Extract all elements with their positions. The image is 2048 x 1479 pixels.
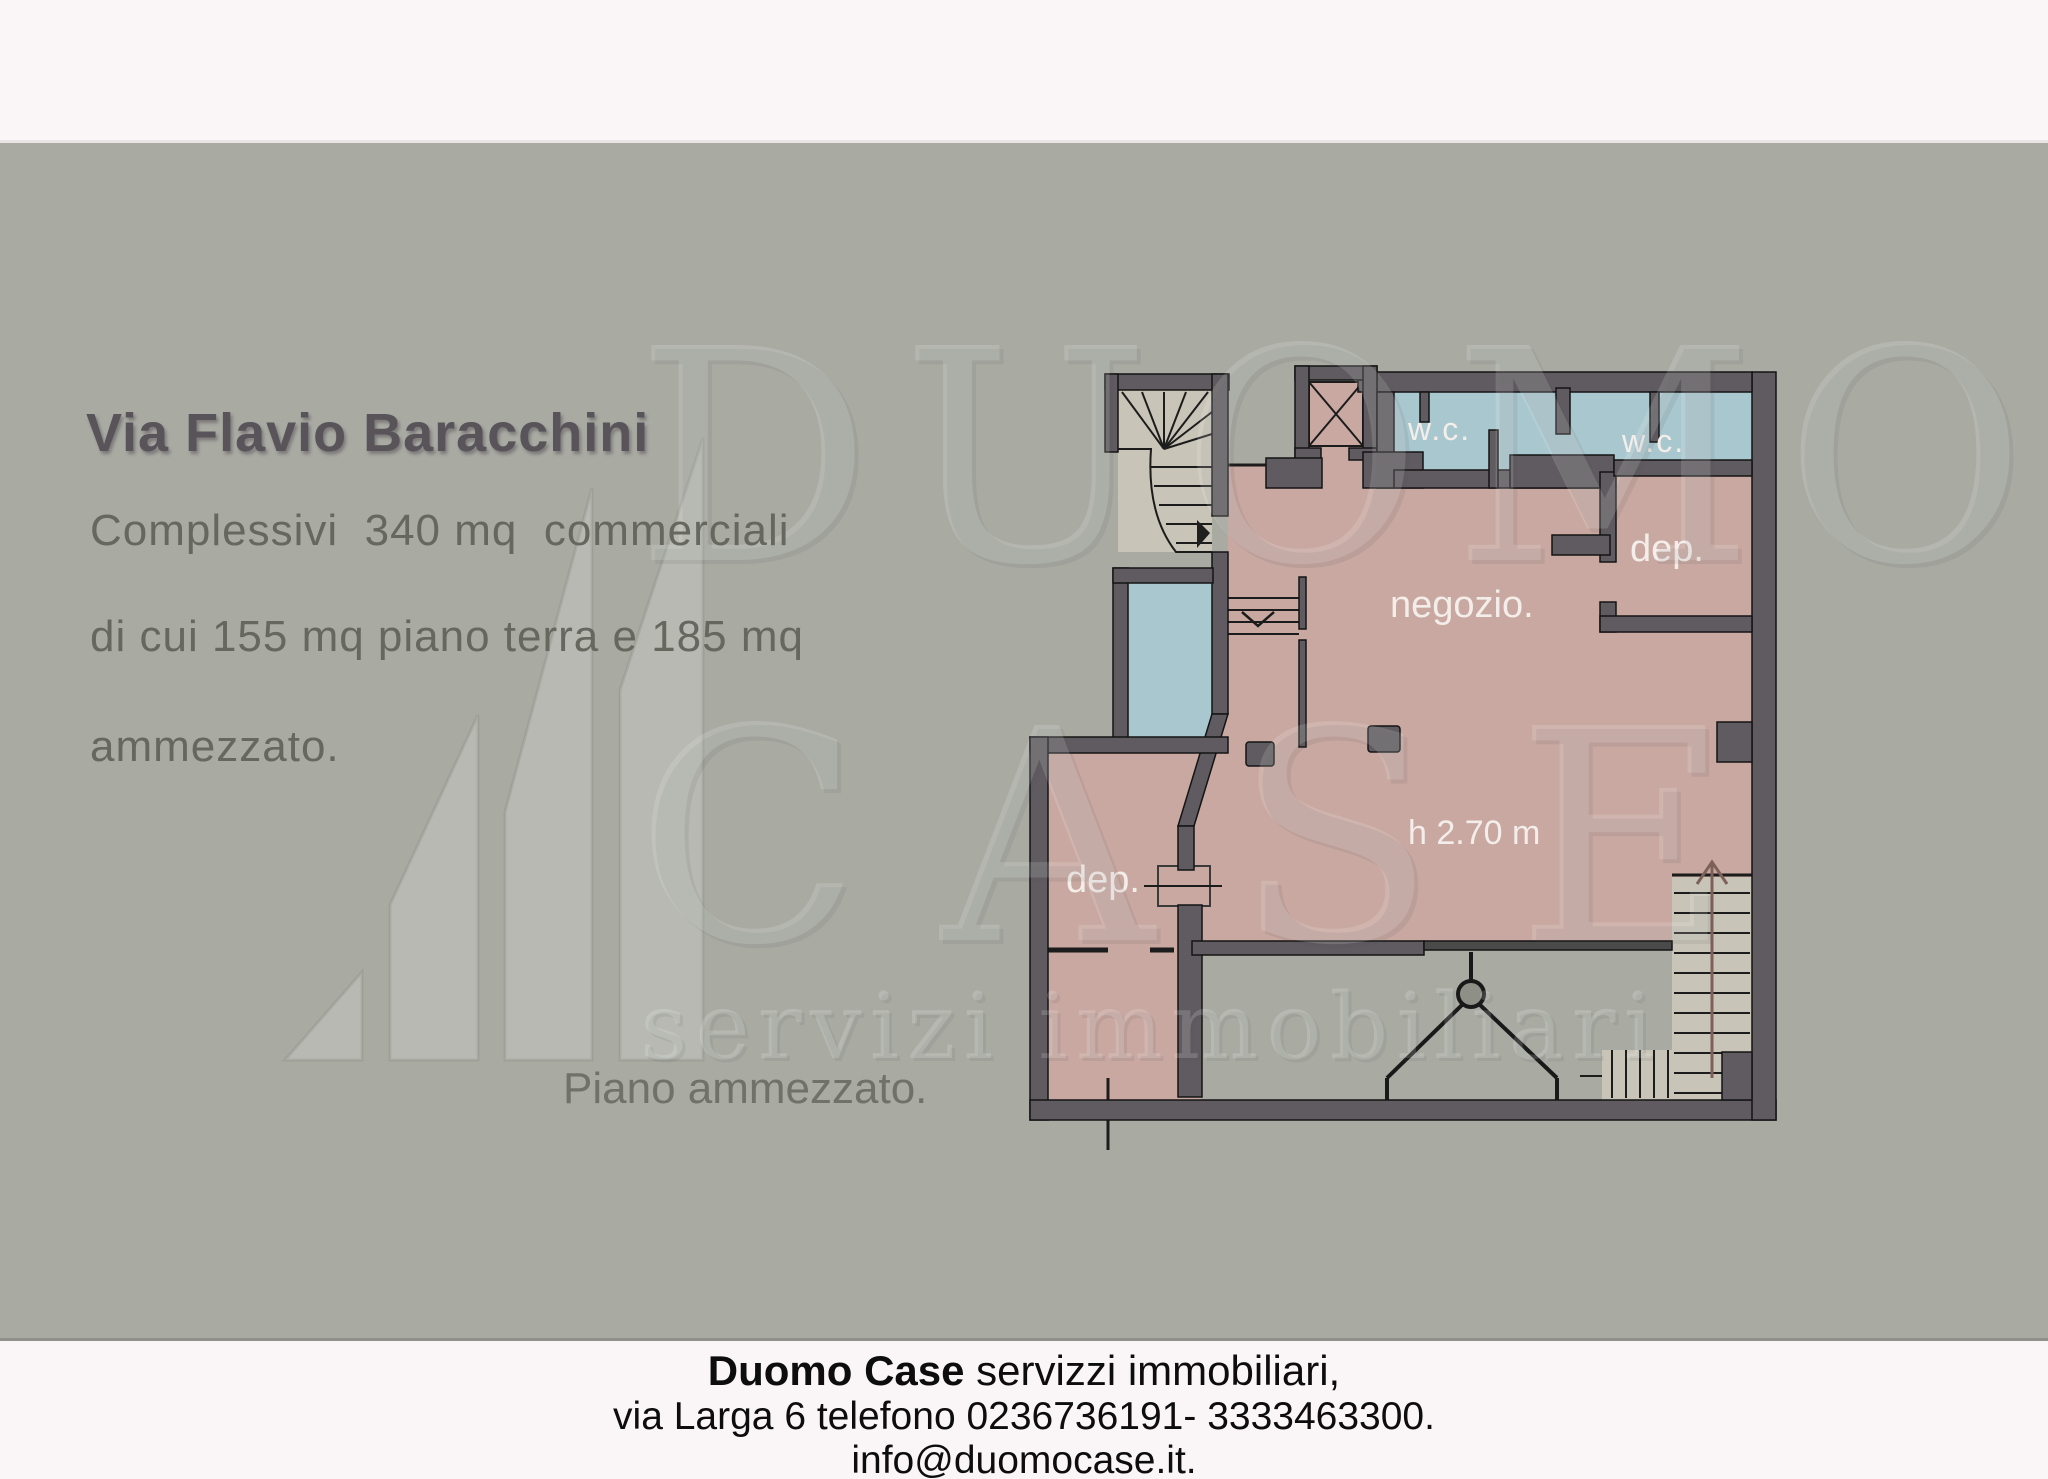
wc2-label: w.c. <box>1621 423 1685 459</box>
footer: Duomo Case servizzi immobiliari, via Lar… <box>0 1338 2048 1479</box>
listing-title: Via Flavio Baracchini <box>86 402 649 464</box>
height-label: h 2.70 m <box>1408 814 1540 852</box>
listing-line-mezzanine: ammezzato. <box>90 722 340 772</box>
entrance-projection-icon <box>1387 952 1557 1102</box>
agency-tagline: servizzi immobiliari, <box>965 1347 1341 1394</box>
dep-top-label: dep. <box>1630 528 1704 570</box>
shaft-floor <box>1128 583 1212 737</box>
top-strip <box>0 0 2048 143</box>
floor-caption: Piano ammezzato. <box>563 1064 927 1114</box>
column <box>1368 726 1400 752</box>
listing-line-total: Complessivi 340 mq commerciali <box>90 506 790 556</box>
wc1-label: w.c. <box>1407 411 1471 447</box>
shop-label: negozio. <box>1390 584 1534 626</box>
listing-line-split: di cui 155 mq piano terra e 185 mq <box>90 612 804 662</box>
agency-email: info@duomocase.it. <box>0 1439 2048 1479</box>
column <box>1246 742 1274 766</box>
floor-plan: w.c. w.c. dep. negozio. h 2.70 m dep. <box>1010 350 1810 1160</box>
agency-name-line: Duomo Case servizzi immobiliari, <box>0 1347 2048 1395</box>
dep-bottom-label: dep. <box>1066 859 1140 901</box>
agency-name: Duomo Case <box>708 1347 965 1394</box>
agency-address-phone: via Larga 6 telefono 0236736191- 3333463… <box>0 1395 2048 1439</box>
flyer-page: DUOMO DUOMO CASE CASE servizi immobiliar… <box>0 0 2048 1479</box>
